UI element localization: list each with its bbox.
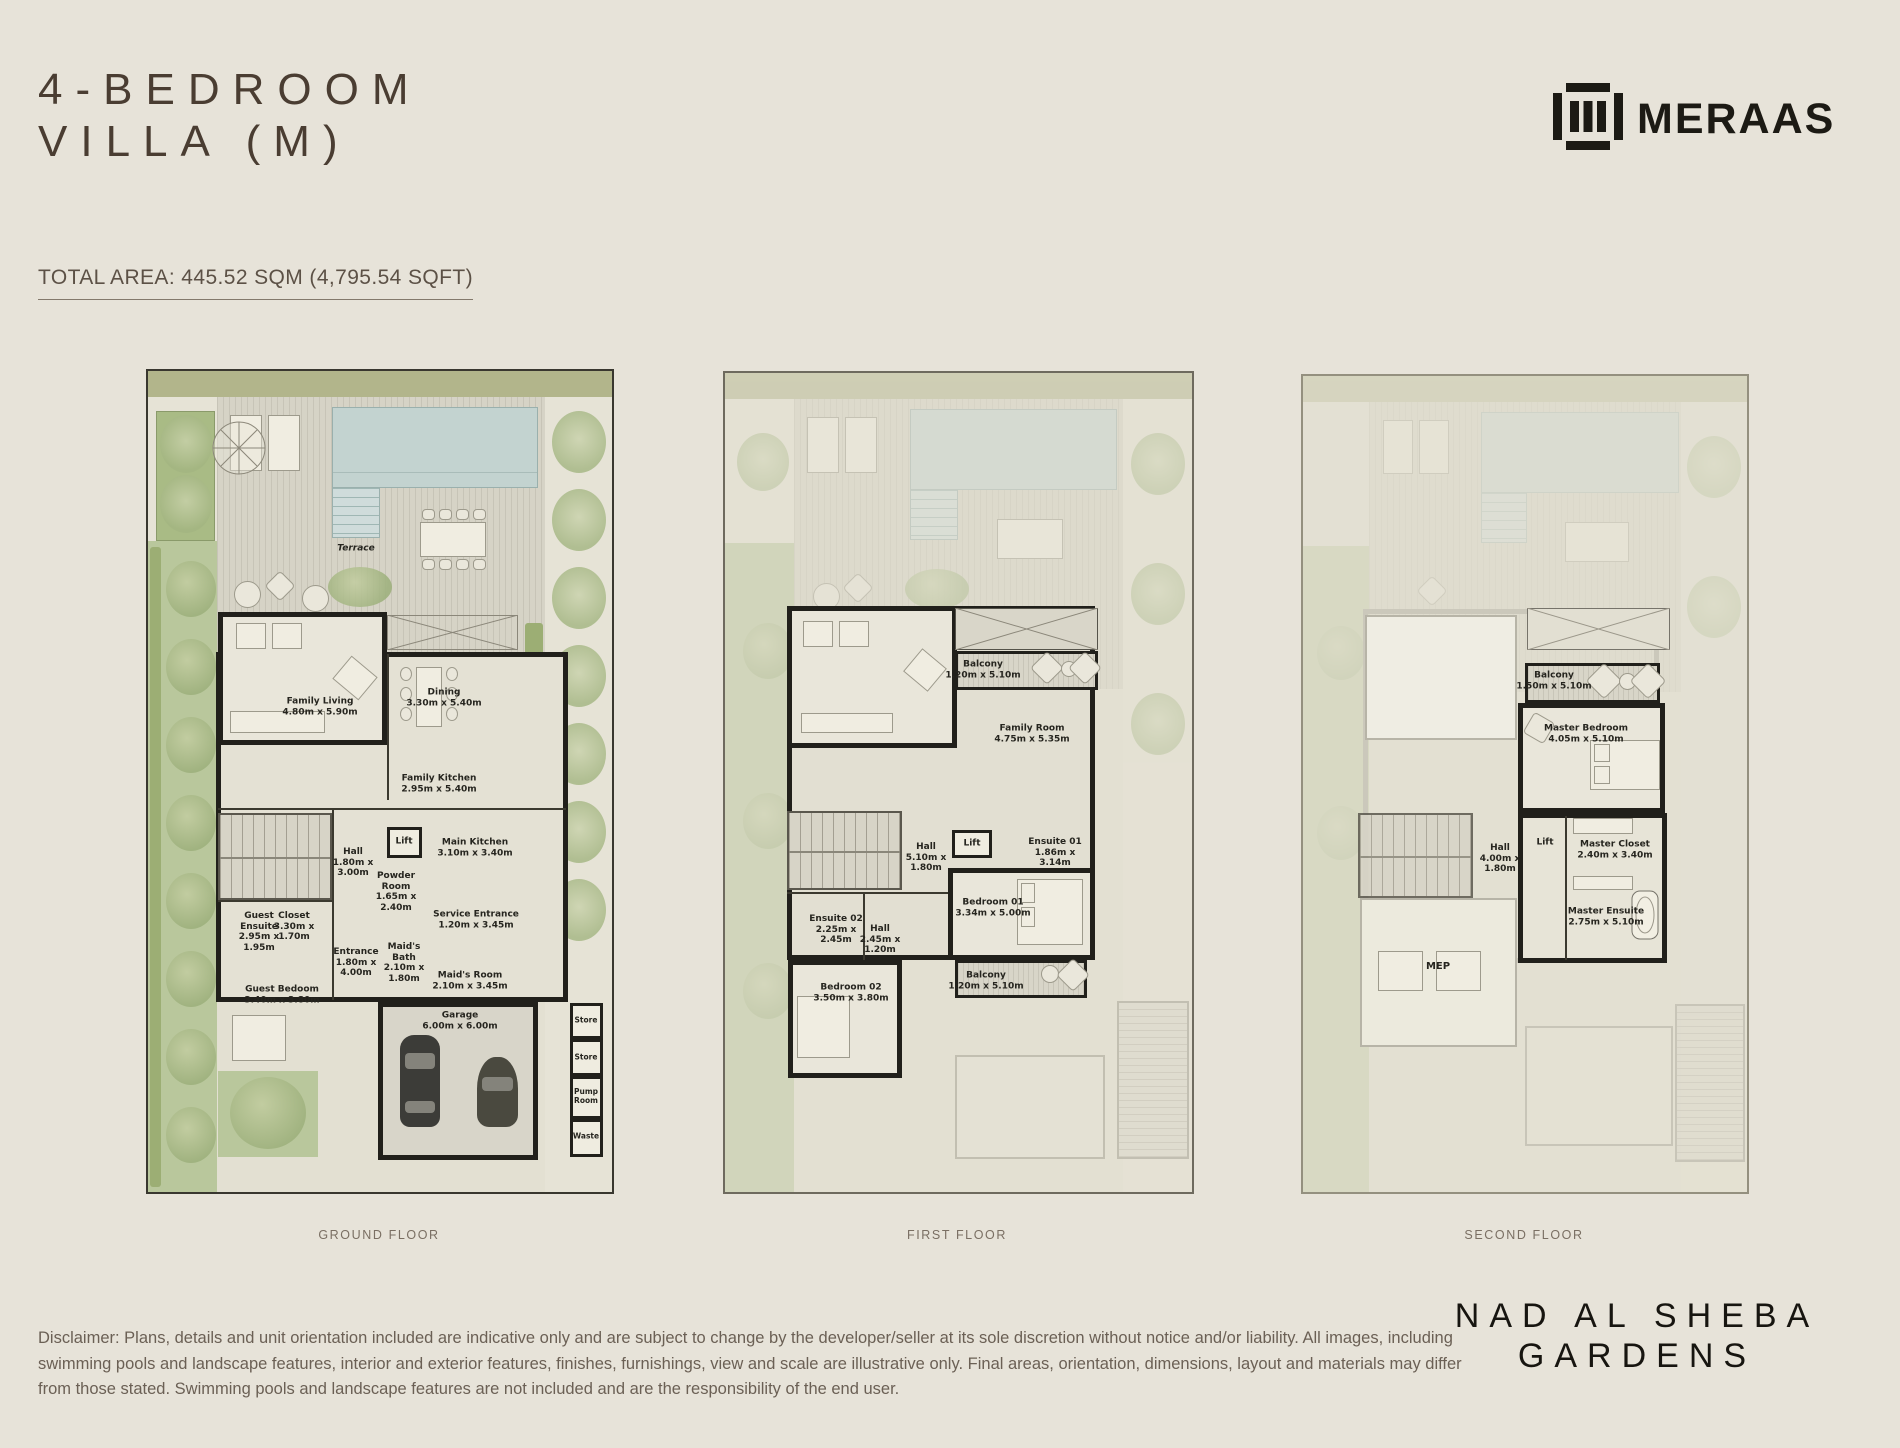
room-label-hall: Hall5.10m x 1.80m [898, 842, 954, 874]
room-label-balcony: Balcony1.50m x 5.10m [1516, 670, 1591, 691]
sofa-icon [801, 713, 893, 733]
roof-paving [1525, 1026, 1673, 1146]
staircase [1358, 813, 1473, 898]
room-label-ensuite-01: Ensuite 011.86m x 3.14m [1027, 837, 1083, 869]
room-label-store-1: Store [571, 1017, 601, 1026]
chair-icon [400, 707, 412, 721]
tree-icon [166, 1107, 216, 1163]
room-label-family-kitchen: Family Kitchen2.95m x 5.40m [401, 773, 476, 794]
room-label-family-room: Family Room4.75m x 5.35m [994, 723, 1069, 744]
total-area: TOTAL AREA: 445.52 SQM (4,795.54 SQFT) [38, 266, 473, 300]
project-name: NAD AL SHEBA GARDENS [1427, 1296, 1847, 1376]
wardrobe-icon [1573, 818, 1633, 834]
project-name-line2: GARDENS [1427, 1336, 1847, 1376]
outdoor-dining-table [420, 522, 486, 557]
roof-paving [955, 1055, 1105, 1159]
wall-divider [218, 900, 334, 902]
tree-icon [166, 795, 216, 851]
tree-icon [166, 717, 216, 773]
room-label-lift: Lift [1536, 838, 1553, 849]
roof-paving [1117, 1001, 1189, 1159]
roof-area [1365, 615, 1517, 740]
palm-tree-icon [552, 489, 606, 551]
lounge-chair-icon [302, 585, 329, 612]
chair-icon [446, 667, 458, 681]
pergola-open-to-below [1527, 608, 1670, 650]
room-label-guest-bedroom: Guest Bedoom3.40m x 3.80m [244, 984, 319, 1005]
page-title-line2: VILLA (M) [38, 116, 421, 168]
room-label-lift: Lift [395, 837, 412, 848]
tree-icon [166, 1029, 216, 1085]
palm-tree-icon [160, 415, 212, 473]
room-label-waste: Waste [571, 1133, 601, 1142]
chair-icon [422, 509, 435, 520]
wall-divider [787, 892, 957, 894]
room-label-lift: Lift [963, 839, 980, 850]
room-label-service-entrance: Service Entrance1.20m x 3.45m [433, 909, 519, 930]
staircase [787, 811, 902, 890]
tree-icon [166, 873, 216, 929]
mep-unit-icon [1378, 951, 1423, 991]
chair-icon [439, 509, 452, 520]
room-label-bedroom-02: Bedroom 023.50m x 3.80m [813, 982, 888, 1003]
hedge-row [150, 547, 161, 1187]
armchair-icon [272, 623, 302, 649]
brochure-page: 4-BEDROOM VILLA (M) TOTAL AREA: 445.52 S… [0, 0, 1900, 1448]
armchair-icon [803, 621, 833, 647]
palm-tree-icon [552, 567, 606, 629]
armchair-icon [839, 621, 869, 647]
room-label-main-kitchen: Main Kitchen3.10m x 3.40m [437, 837, 512, 858]
tree-icon [166, 561, 216, 617]
swimming-pool [332, 407, 538, 488]
umbrella-icon [210, 419, 268, 482]
tree-icon [166, 951, 216, 1007]
chair-icon [473, 509, 486, 520]
brand-logo: MERAAS [1553, 83, 1835, 155]
wall-divider [218, 808, 566, 810]
chair-icon [422, 559, 435, 570]
pergola-open-to-below [955, 608, 1098, 650]
armchair-icon [236, 623, 266, 649]
room-label-bedroom-01: Bedroom 013.34m x 5.00m [955, 897, 1030, 918]
lounge-chair-icon [234, 581, 261, 608]
pool-steps [332, 488, 380, 538]
bed-icon [797, 996, 850, 1058]
room-label-garage: Garage6.00m x 6.00m [422, 1010, 497, 1031]
room-label-mep: MEP [1426, 961, 1450, 973]
room-label-maids-bath: Maid's Bath2.10m x 1.80m [376, 942, 432, 984]
palm-tree-icon [552, 411, 606, 473]
meraas-mark-icon [1553, 83, 1623, 155]
wall-divider [1565, 816, 1567, 960]
room-label-master-closet: Master Closet2.40m x 3.40m [1574, 839, 1656, 860]
tree-icon [230, 1077, 306, 1149]
room-label-powder-room: Powder Room1.65m x 2.40m [368, 871, 424, 913]
second-floor-plan: Balcony1.50m x 5.10m Master Bedroom4.05m… [1301, 374, 1749, 1194]
chair-icon [456, 559, 469, 570]
sun-lounger [268, 415, 300, 471]
chair-icon [400, 667, 412, 681]
chair-icon [473, 559, 486, 570]
room-label-maids-room: Maid's Room2.10m x 3.45m [432, 970, 507, 991]
room-label-family-living: Family Living4.80m x 5.90m [282, 696, 357, 717]
room-label-pump-room: Pump Room [571, 1088, 601, 1106]
roof-paving [1675, 1004, 1745, 1162]
vanity-icon [1573, 876, 1633, 890]
first-floor-plan: Balcony1.20m x 5.10m Family Room4.75m x … [723, 371, 1194, 1194]
chair-icon [446, 707, 458, 721]
page-title-line1: 4-BEDROOM [38, 64, 421, 116]
room-label-store-2: Store [571, 1054, 601, 1063]
room-label-hall: Hall4.00m x 1.80m [1472, 843, 1528, 875]
car-icon [400, 1035, 440, 1127]
bed-icon [232, 1015, 286, 1061]
room-label-master-ensuite: Master Ensuite2.75m x 5.10m [1568, 906, 1644, 927]
disclaimer-text: Disclaimer: Plans, details and unit orie… [38, 1326, 1488, 1403]
caption-second-floor: SECOND FLOOR [1464, 1228, 1583, 1242]
chair-icon [439, 559, 452, 570]
caption-ground-floor: GROUND FLOOR [318, 1228, 439, 1242]
pergola-bridge [387, 615, 518, 650]
room-label-dining: Dining3.30m x 5.40m [406, 687, 481, 708]
page-title: 4-BEDROOM VILLA (M) [38, 64, 421, 168]
room-label-balcony-bottom: Balcony1.20m x 5.10m [948, 970, 1023, 991]
pillow-icon [1594, 744, 1610, 762]
brand-name: MERAAS [1637, 95, 1835, 144]
staircase [218, 813, 332, 900]
garden-band [148, 371, 612, 397]
chair-icon [456, 509, 469, 520]
room-label-master-bedroom: Master Bedroom4.05m x 5.10m [1544, 723, 1628, 744]
pillow-icon [1594, 766, 1610, 784]
room-label-closet: Closet3.30m x 1.70m [266, 911, 322, 943]
room-label-hall-2: Hall2.45m x 1.20m [852, 924, 908, 956]
tree-icon [328, 567, 392, 607]
ground-floor-plan: Terrace Family Living4.80m x 5.90m Dinin… [146, 369, 614, 1194]
caption-first-floor: FIRST FLOOR [907, 1228, 1007, 1242]
car-icon [477, 1057, 518, 1127]
room-label-terrace: Terrace [337, 544, 374, 555]
palm-tree-icon [160, 475, 212, 533]
wall-divider [387, 654, 389, 800]
tree-icon [166, 639, 216, 695]
project-name-line1: NAD AL SHEBA [1427, 1296, 1847, 1336]
room-label-balcony-top: Balcony1.20m x 5.10m [945, 659, 1020, 680]
